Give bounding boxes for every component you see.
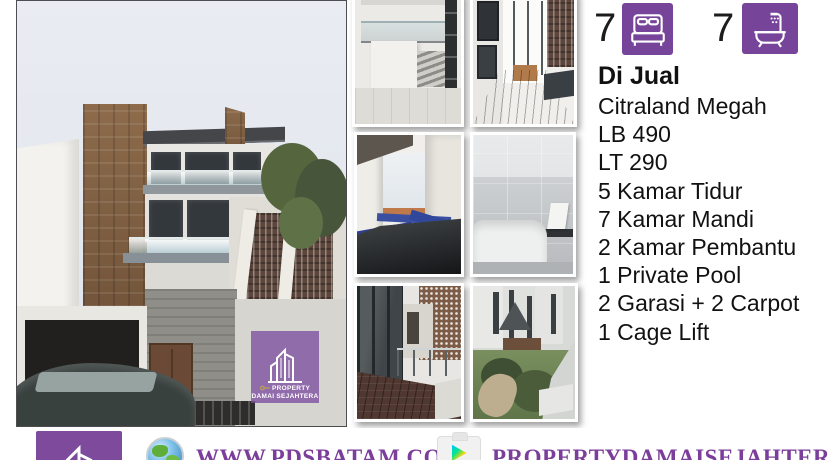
building-icon [268, 344, 302, 384]
bath-icon [742, 3, 798, 54]
watermark-line1: PROPERTY [272, 385, 310, 392]
bedroom-count: 7 [594, 6, 616, 51]
door-frame [527, 1, 529, 75]
opening [407, 312, 419, 344]
photo-house-exterior: PROPERTY DAMAI SEJAHTERA [0, 0, 349, 431]
photo-bathroom [470, 132, 576, 277]
photo-private-pool [354, 132, 464, 277]
ceiling [361, 0, 445, 5]
play-store-icon [437, 436, 481, 460]
tree-foliage [279, 197, 323, 249]
key-icon [260, 385, 270, 391]
listing-detail: 1 Cage Lift [598, 318, 799, 346]
globe-icon [146, 437, 184, 460]
watermark-text: PROPERTY DAMAI SEJAHTERA [252, 385, 319, 403]
footer-bar: WWW.PDSBATAM.COM PROPERTYDAMAISEJAHTERA [0, 428, 830, 460]
listing-location: Citraland Megah [598, 92, 799, 120]
marble-floor [355, 88, 461, 124]
listing-detail: LB 490 [598, 120, 799, 148]
neighbor-house [535, 286, 563, 344]
towel [547, 203, 569, 229]
patterned-wall [547, 0, 574, 67]
window-slot [493, 292, 499, 334]
property-listing-flyer: PROPERTY DAMAI SEJAHTERA [0, 0, 830, 460]
globe-continent [166, 455, 180, 460]
photo-balcony [354, 283, 464, 422]
website-url: WWW.PDSBATAM.COM [196, 445, 464, 460]
listing-detail: LT 290 [598, 148, 799, 176]
listing-detail: 7 Kamar Mandi [598, 205, 799, 233]
social-handle: PROPERTYDAMAISEJAHTERA [492, 445, 830, 460]
window [477, 1, 499, 41]
bench [544, 70, 574, 100]
white-fascia [435, 378, 461, 419]
floor [473, 262, 573, 274]
door-frame [513, 1, 515, 75]
wall-panel [371, 41, 417, 93]
play-triangle [452, 445, 467, 460]
listing-detail: 5 Kamar Tidur [598, 177, 799, 205]
photo-interior-hallway [470, 0, 577, 127]
window [149, 200, 183, 240]
agency-watermark: PROPERTY DAMAI SEJAHTERA [251, 331, 319, 403]
listing-detail: 2 Kamar Pembantu [598, 233, 799, 261]
balcony-railing [397, 348, 461, 376]
mezzanine-railing [361, 21, 445, 43]
window-slot [527, 296, 532, 342]
listing-detail: 2 Garasi + 2 Carpot [598, 289, 799, 317]
bathroom-count: 7 [712, 6, 734, 51]
listing-detail: 1 Private Pool [598, 261, 799, 289]
open-view [383, 153, 425, 217]
staircase [417, 51, 445, 87]
neighbor-house [473, 286, 503, 348]
globe-continent [152, 445, 168, 457]
bed-icon [622, 3, 673, 55]
house-exterior-scene: PROPERTY DAMAI SEJAHTERA [16, 0, 347, 427]
agency-building-logo [36, 431, 122, 460]
listing-info-panel: 7 7 [590, 0, 830, 428]
window-slot [551, 294, 556, 334]
window [477, 45, 497, 79]
listing-details: Di Jual Citraland Megah LB 490 LT 290 5 … [598, 60, 799, 346]
watermark-line2: DAMAI SEJAHTERA [252, 393, 319, 400]
photo-garden-view [470, 283, 578, 422]
bathtub [473, 220, 547, 264]
car-windshield [35, 372, 158, 392]
listing-status: Di Jual [598, 60, 799, 92]
door-frame [541, 1, 543, 75]
photo-interior-stairs [352, 0, 464, 127]
